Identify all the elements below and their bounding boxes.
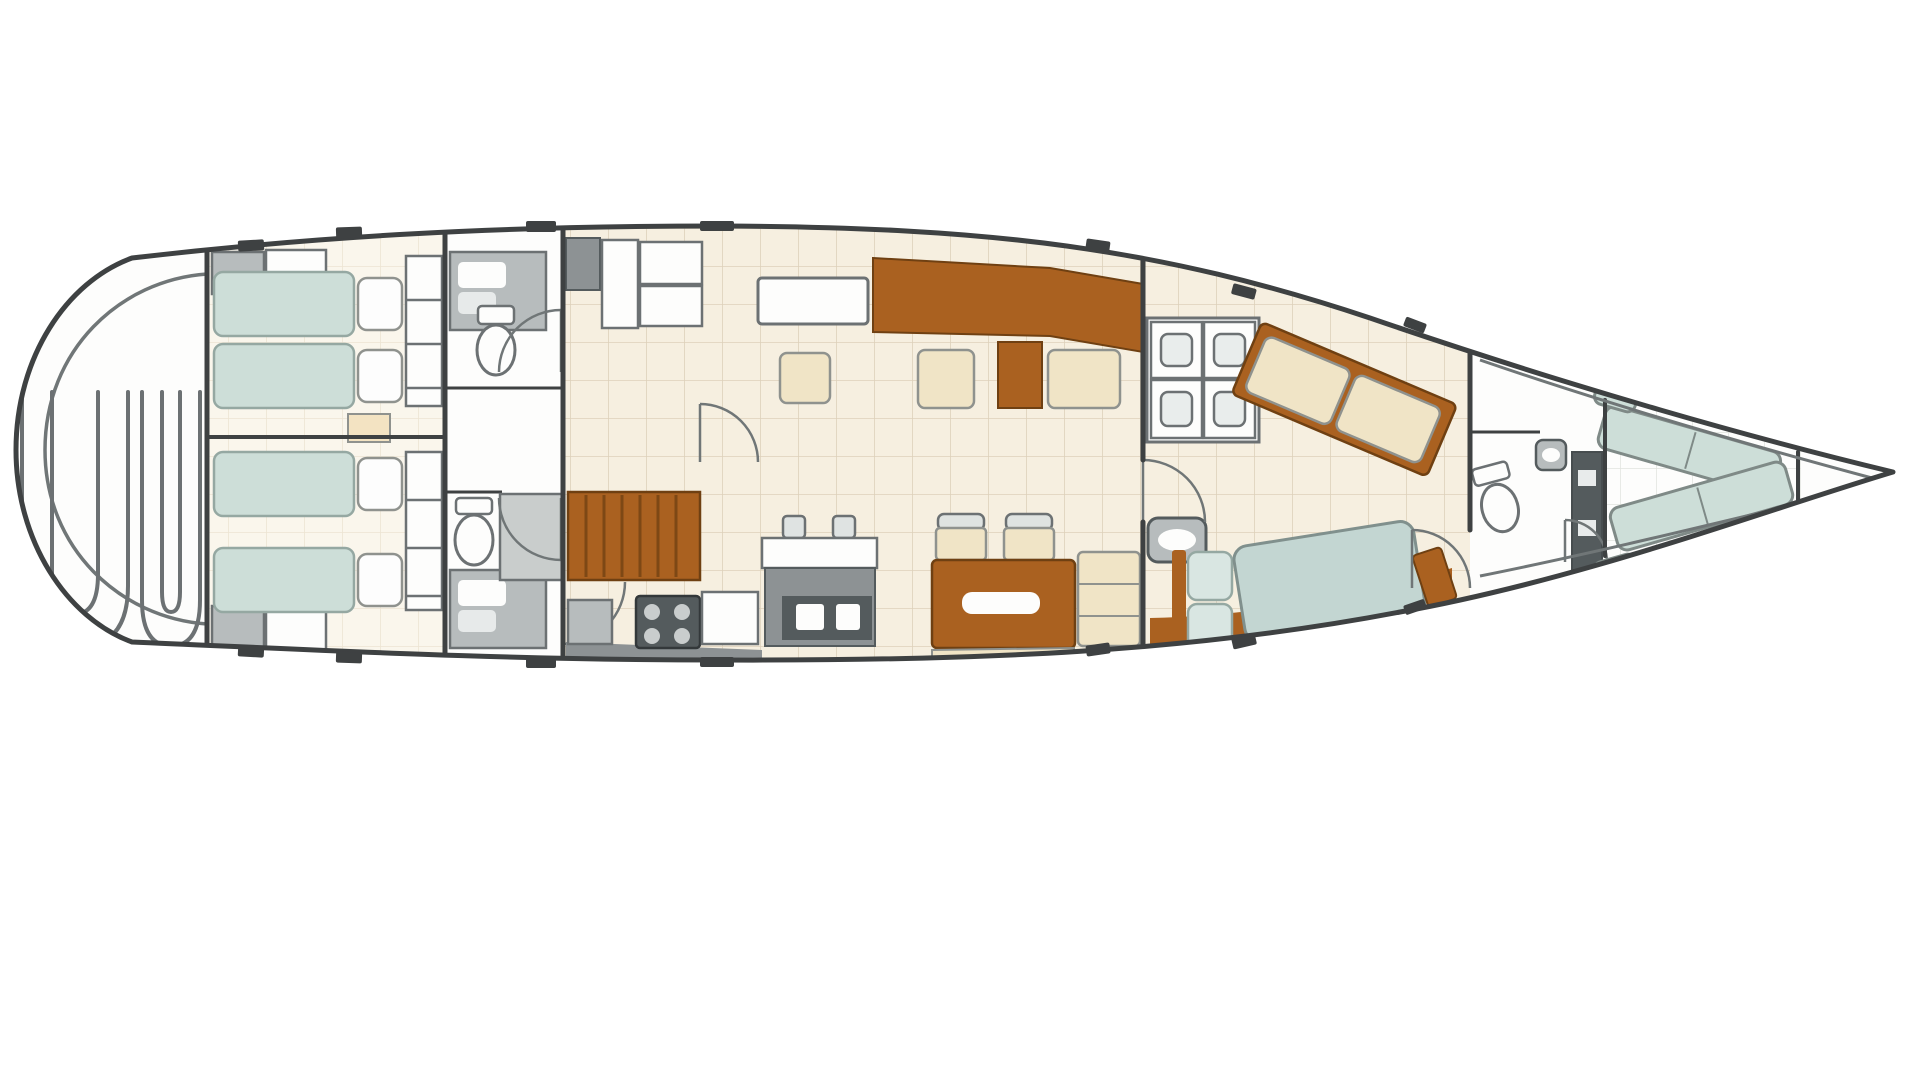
vanity-sink [458, 580, 506, 606]
island-fitting [833, 516, 855, 538]
berth-mattress [214, 272, 354, 336]
dining-chair-seat [936, 528, 986, 560]
galley-top-cabinet [640, 286, 702, 326]
companionway [500, 492, 700, 580]
island-fitting [783, 516, 805, 538]
yacht-floor-plan-page [0, 0, 1920, 1080]
galley-cabinet [568, 600, 612, 644]
berth-mattress [214, 452, 354, 516]
bed-headboard-wood [1172, 550, 1186, 654]
aft-cabinet-white-bottom [266, 610, 326, 650]
bed-pillow [1188, 552, 1232, 600]
berth-pillow [358, 554, 402, 606]
dining-table-leaf [962, 592, 1040, 614]
toilet-tank [478, 306, 514, 324]
settee-cushion [918, 350, 974, 408]
island-sink [836, 604, 860, 630]
head-sink [1536, 440, 1566, 470]
settee-cushion [780, 353, 830, 403]
dining-chair-seat [1004, 528, 1054, 560]
dining-bench [1078, 552, 1140, 646]
toilet-bowl [455, 515, 493, 565]
settee-armrest-wood [998, 342, 1042, 408]
hanging-locker [406, 452, 442, 610]
vanity-sink [458, 610, 496, 632]
companionway-stairs [568, 492, 700, 580]
bed-pillow [1188, 604, 1232, 652]
yacht-floor-plan-figure [0, 0, 1920, 1080]
berth-pillow [358, 458, 402, 510]
berth-pillow [358, 350, 402, 402]
settee-cushion [1048, 350, 1120, 408]
galley-top-cabinet [602, 240, 638, 328]
companionway-landing [500, 494, 563, 580]
toilet-bowl [477, 325, 515, 375]
berth-mattress [214, 548, 354, 612]
galley-counter-white [702, 592, 758, 644]
galley-top-cabinet-dark [566, 238, 600, 290]
stove [636, 596, 700, 648]
hanging-locker [406, 256, 442, 406]
toilet-tank [456, 498, 492, 514]
island-sink [796, 604, 824, 630]
berth-mattress [214, 344, 354, 408]
bow-back-cushion [1593, 552, 1647, 612]
island-top [762, 538, 877, 568]
galley-top-cabinet [640, 242, 702, 284]
salon-side-table [758, 278, 868, 324]
berth-pillow [358, 278, 402, 330]
vanity-sink [458, 262, 506, 288]
